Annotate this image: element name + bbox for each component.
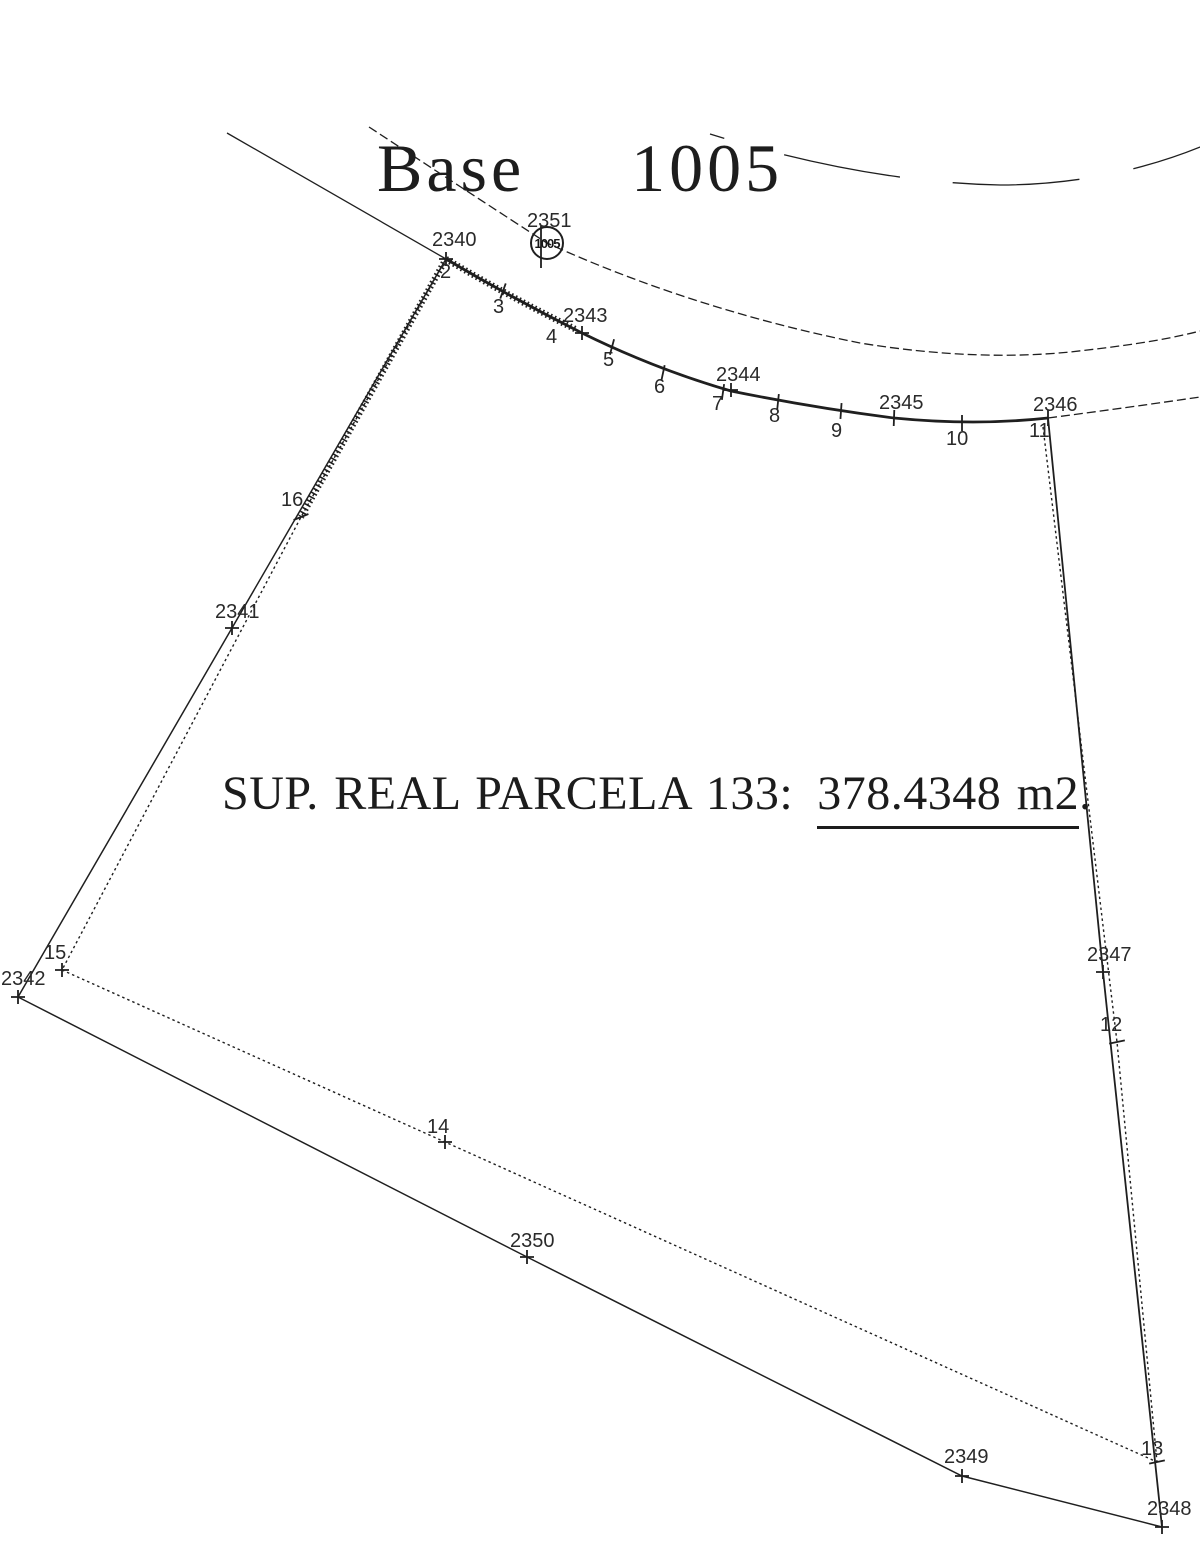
point-label-3: 3 bbox=[493, 296, 504, 318]
drawing-title: Base 1005 bbox=[377, 134, 783, 202]
point-marker-2350 bbox=[520, 1250, 534, 1264]
point-label-5: 5 bbox=[603, 349, 614, 371]
point-marker-2348 bbox=[1155, 1520, 1169, 1534]
survey-plan-canvas: 2340232343456723448923451023461116234115… bbox=[0, 0, 1200, 1566]
point-label-4: 4 bbox=[546, 326, 557, 348]
point-label-2340: 2340 bbox=[432, 229, 477, 251]
area-annotation-suffix: . bbox=[1079, 767, 1092, 820]
path-left-boundary-hatch bbox=[301, 259, 446, 517]
point-label-7: 7 bbox=[712, 393, 723, 415]
path-bottom-boundary-dotted bbox=[62, 970, 1157, 1462]
point-label-2347: 2347 bbox=[1087, 944, 1132, 966]
point-marker-2341 bbox=[225, 621, 239, 635]
area-annotation: SUP. REAL PARCELA 133:378.4348 m2. bbox=[222, 770, 1092, 818]
point-label-15: 15 bbox=[44, 942, 66, 964]
point-label-2348: 2348 bbox=[1147, 1498, 1192, 1520]
point-label-2343: 2343 bbox=[563, 305, 608, 327]
path-road-edge-outer bbox=[710, 134, 1200, 185]
point-label-13: 13 bbox=[1141, 1438, 1163, 1460]
point-marker-2349 bbox=[955, 1469, 969, 1483]
point-label-14: 14 bbox=[427, 1116, 449, 1138]
point-marker-15 bbox=[55, 963, 69, 977]
point-label-2345: 2345 bbox=[879, 392, 924, 414]
point-marker-2343 bbox=[575, 326, 589, 340]
point-label-2350: 2350 bbox=[510, 1230, 555, 1252]
point-label-6: 6 bbox=[654, 376, 665, 398]
point-label-16: 16 bbox=[281, 489, 303, 511]
path-top-boundary-curve bbox=[446, 259, 1048, 422]
area-annotation-prefix: SUP. REAL PARCELA 133: bbox=[222, 767, 793, 820]
point-label-2342: 2342 bbox=[1, 968, 46, 990]
point-marker-9 bbox=[840, 403, 841, 419]
point-label-2344: 2344 bbox=[716, 364, 761, 386]
point-marker-2342 bbox=[11, 990, 25, 1004]
point-label-12: 12 bbox=[1100, 1014, 1122, 1036]
point-label-11: 11 bbox=[1029, 420, 1050, 442]
point-label-2351: 2351 bbox=[527, 210, 572, 232]
point-label-2346: 2346 bbox=[1033, 394, 1078, 416]
point-label-10: 10 bbox=[946, 428, 968, 450]
point-label-8: 8 bbox=[769, 405, 780, 427]
station-symbol-text: 1005 bbox=[535, 236, 561, 251]
area-annotation-value: 378.4348 m2 bbox=[817, 767, 1079, 829]
point-label-2: 2 bbox=[440, 261, 451, 283]
point-marker-2347 bbox=[1096, 965, 1110, 979]
point-label-9: 9 bbox=[831, 420, 842, 442]
point-label-2349: 2349 bbox=[944, 1446, 989, 1468]
path-bottom-boundary-solid bbox=[18, 997, 1162, 1527]
point-label-2341: 2341 bbox=[215, 601, 260, 623]
